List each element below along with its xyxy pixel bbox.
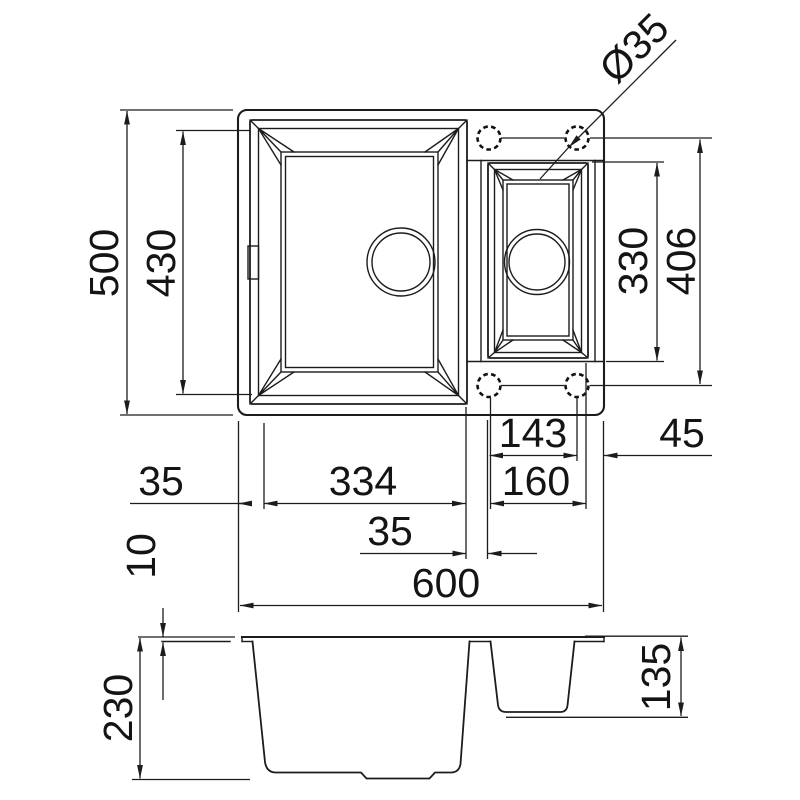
dim-small-bowl-offset: 160 bbox=[502, 458, 570, 504]
dim-left-rim-offset: 35 bbox=[138, 458, 184, 504]
dim-tap-hole-diameter: Ø35 bbox=[590, 4, 677, 91]
dim-small-bowl-depth: 135 bbox=[633, 643, 679, 711]
dim-main-bowl-depth: 230 bbox=[95, 674, 141, 742]
right-dimensions: 330 406 bbox=[592, 140, 704, 385]
tap-hole-top-left bbox=[478, 127, 501, 150]
dim-bowl-gap: 35 bbox=[367, 508, 413, 554]
small-drain-outer bbox=[505, 230, 570, 295]
sink-top-view: Ø35 500 430 330 406 bbox=[81, 4, 712, 612]
sink-technical-drawing: Ø35 500 430 330 406 bbox=[0, 0, 800, 800]
tap-hole-bottom-left bbox=[478, 374, 501, 397]
small-drain-inner bbox=[509, 234, 565, 290]
small-bowl-depth-dimension: 135 bbox=[633, 638, 681, 717]
drawing-canvas: Ø35 500 430 330 406 bbox=[0, 0, 800, 800]
dim-bowl-length: 430 bbox=[138, 229, 184, 297]
dim-overall-width: 600 bbox=[412, 560, 480, 606]
main-drain-inner bbox=[372, 233, 430, 291]
dim-main-bowl-width: 334 bbox=[329, 458, 397, 504]
tap-hole-top-right bbox=[566, 127, 589, 150]
dim-overall-depth: 500 bbox=[81, 229, 127, 297]
small-bowl-profile bbox=[491, 642, 575, 713]
sink-side-view: 10 230 135 bbox=[95, 533, 688, 779]
main-drain-outer bbox=[367, 228, 435, 296]
main-bowl-profile bbox=[253, 642, 470, 779]
dim-tap-hole-pitch: 143 bbox=[499, 410, 567, 456]
main-bowl-depth-dimension: 230 bbox=[95, 638, 141, 779]
dim-tap-hole-edge-offset: 45 bbox=[659, 410, 705, 456]
tap-hole-bottom-right bbox=[566, 374, 589, 397]
bottom-dimensions: 143 45 35 334 160 35 600 bbox=[130, 363, 712, 612]
left-dimensions: 500 430 bbox=[81, 110, 252, 415]
tap-hole-diameter-callout: Ø35 bbox=[540, 4, 678, 179]
small-bowl bbox=[488, 163, 588, 358]
main-bowl bbox=[248, 120, 467, 404]
dim-tap-hole-span: 406 bbox=[658, 227, 704, 295]
dim-small-bowl-length: 330 bbox=[610, 227, 656, 295]
sink-outline bbox=[238, 110, 604, 415]
dim-rim-thickness: 10 bbox=[118, 533, 164, 579]
